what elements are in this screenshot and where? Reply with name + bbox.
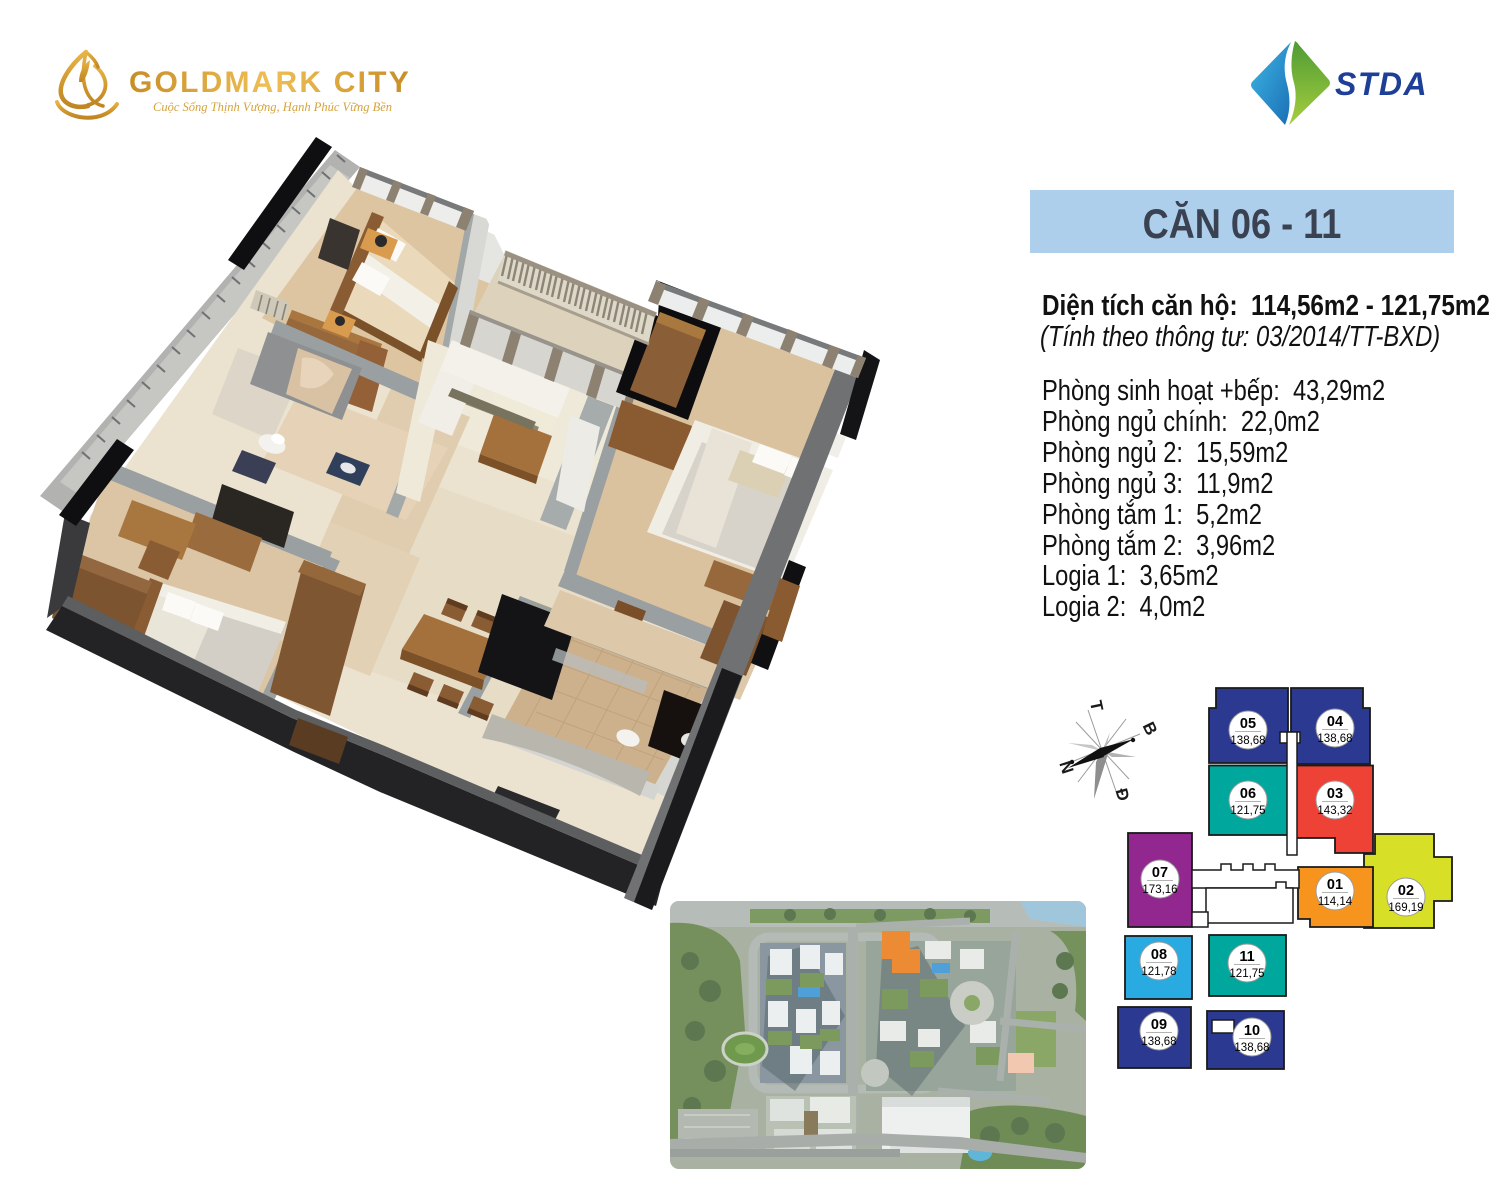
svg-text:138,68: 138,68 — [1141, 1036, 1176, 1048]
svg-text:138,68: 138,68 — [1317, 733, 1352, 745]
svg-text:05: 05 — [1240, 716, 1256, 732]
svg-text:N: N — [1055, 759, 1077, 777]
svg-text:138,68: 138,68 — [1230, 735, 1265, 747]
svg-text:121,75: 121,75 — [1230, 805, 1265, 817]
svg-text:143,32: 143,32 — [1317, 805, 1352, 817]
svg-text:02: 02 — [1398, 883, 1414, 899]
svg-text:08: 08 — [1151, 947, 1167, 963]
svg-text:04: 04 — [1327, 714, 1343, 730]
svg-text:114,14: 114,14 — [1318, 896, 1353, 908]
svg-text:121,75: 121,75 — [1229, 968, 1264, 980]
svg-text:06: 06 — [1240, 786, 1256, 802]
svg-text:11: 11 — [1239, 949, 1254, 965]
svg-text:07: 07 — [1152, 865, 1168, 881]
svg-text:T: T — [1086, 699, 1107, 714]
svg-text:B: B — [1139, 719, 1161, 738]
svg-text:169,19: 169,19 — [1388, 902, 1423, 914]
svg-text:138,68: 138,68 — [1234, 1042, 1269, 1054]
svg-text:STDA: STDA — [1335, 66, 1428, 102]
svg-text:03: 03 — [1327, 786, 1343, 802]
svg-text:173,16: 173,16 — [1142, 884, 1177, 896]
svg-text:09: 09 — [1151, 1017, 1167, 1033]
svg-text:121,78: 121,78 — [1141, 966, 1176, 978]
svg-text:01: 01 — [1327, 877, 1343, 893]
svg-text:10: 10 — [1244, 1023, 1260, 1039]
